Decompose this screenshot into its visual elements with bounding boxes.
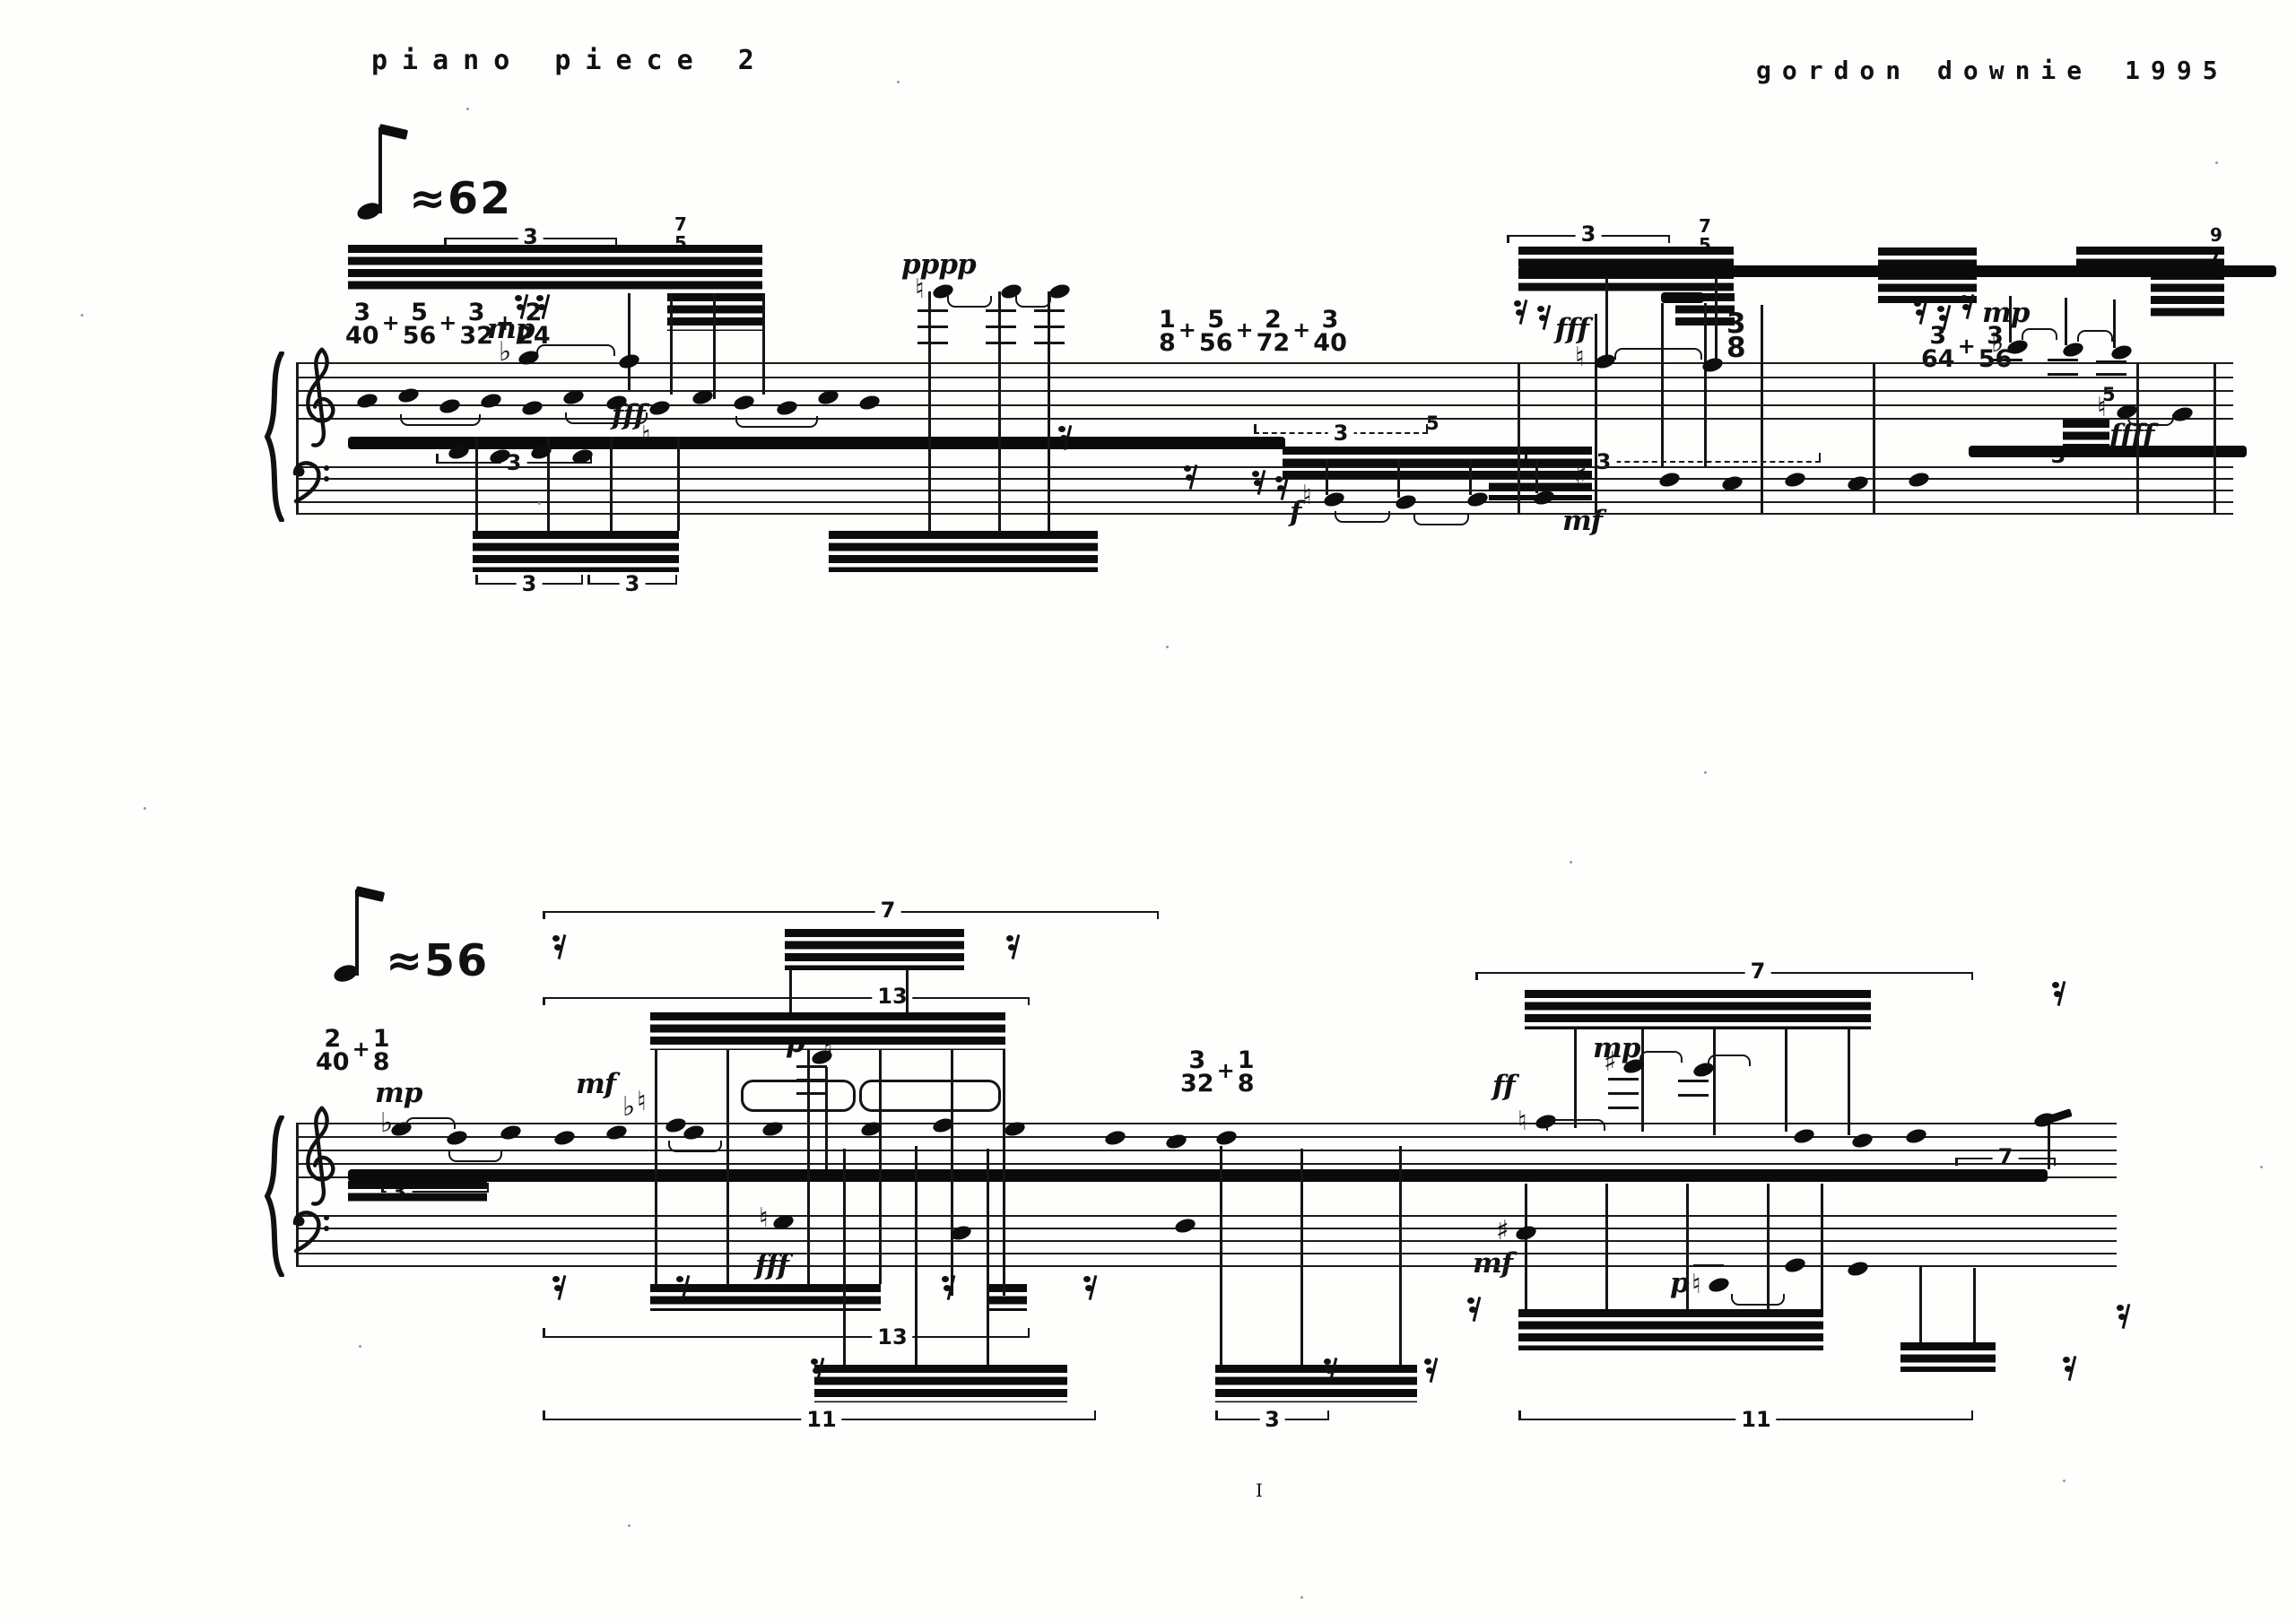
fraction-numerator: 3 bbox=[1188, 1049, 1205, 1072]
eighth-rest-icon bbox=[1514, 299, 1528, 326]
fraction-term: 240 bbox=[316, 1028, 350, 1073]
note-stem bbox=[1661, 303, 1664, 466]
tuplet-number: 3 bbox=[1328, 422, 1354, 444]
tuplet-number: 13 bbox=[872, 1326, 912, 1348]
fraction-numerator: 5 bbox=[1207, 308, 1224, 332]
fraction-denominator: 8 bbox=[1238, 1072, 1255, 1096]
fraction-term: 556 bbox=[403, 301, 437, 347]
eighth-rest-icon bbox=[1424, 1358, 1439, 1384]
staff-line bbox=[296, 1163, 2117, 1165]
tie-slur bbox=[2127, 414, 2174, 426]
note-stem bbox=[475, 437, 478, 531]
ledger-line bbox=[1608, 1107, 1639, 1109]
scan-speck bbox=[1300, 1596, 1303, 1599]
tuplet-bracket-hook bbox=[1971, 972, 1974, 980]
fraction-denominator: 8 bbox=[1159, 332, 1176, 355]
tuplet-bracket-hook bbox=[1028, 1328, 1031, 1336]
natural-accidental: ♮ bbox=[637, 1089, 647, 1115]
tuplet-bracket-line bbox=[543, 997, 1030, 999]
tie-slur bbox=[735, 416, 818, 428]
plus-sign: + bbox=[439, 312, 457, 334]
ledger-line bbox=[918, 325, 948, 328]
ledger-line bbox=[1992, 359, 2022, 361]
note-stem bbox=[1397, 459, 1400, 498]
plus-sign: + bbox=[1958, 335, 1976, 357]
tie-slur bbox=[1708, 1055, 1751, 1066]
staff-line bbox=[296, 466, 2233, 468]
note-stem bbox=[1973, 1268, 1976, 1342]
tuplet-bracket-3-15: 3 bbox=[1215, 1419, 1329, 1421]
scan-speck bbox=[1704, 771, 1707, 774]
note-stem bbox=[1715, 276, 1718, 360]
notehead bbox=[1792, 1127, 1815, 1145]
barline bbox=[1873, 362, 1875, 513]
eighth-rest-icon bbox=[942, 1275, 956, 1302]
tuplet-bracket-hook bbox=[543, 911, 545, 919]
heavy-beam bbox=[1518, 265, 2276, 277]
system-brace-icon bbox=[264, 352, 285, 522]
dynamic-marking-ff-11: ff bbox=[1492, 1072, 1515, 1100]
tuplet-number: 7 bbox=[875, 899, 901, 921]
fraction-term: 340 bbox=[1313, 308, 1347, 354]
staff-line bbox=[296, 1215, 2117, 1217]
scan-speck bbox=[81, 314, 83, 317]
plus-sign: + bbox=[352, 1038, 370, 1060]
note-stem bbox=[906, 968, 909, 1012]
eighth-note-icon bbox=[357, 122, 404, 219]
fraction-numerator: 5 bbox=[411, 301, 428, 325]
staff-line bbox=[296, 404, 2233, 406]
dynamic-marking-mf-9: mf bbox=[576, 1071, 615, 1098]
treble-clef-icon bbox=[292, 1099, 343, 1212]
note-stem bbox=[1704, 303, 1707, 466]
notehead bbox=[1907, 471, 1930, 489]
tuplet-number: 3 bbox=[620, 573, 646, 595]
note-stem bbox=[670, 293, 673, 395]
sharp-accidental: ♯ bbox=[1496, 1218, 1509, 1245]
fraction-numerator: 3 bbox=[353, 301, 370, 325]
note-stem bbox=[2048, 1119, 2050, 1169]
note-stem bbox=[1761, 305, 1763, 513]
tuplet-bracket-hook bbox=[1028, 997, 1031, 1005]
beam-block bbox=[829, 531, 1098, 572]
tie-slur bbox=[1335, 511, 1390, 523]
tuplet-bracket-3-3: 3 bbox=[1254, 432, 1428, 435]
staff-line bbox=[296, 1265, 2117, 1267]
note-stem bbox=[1713, 1029, 1716, 1135]
system-brace-icon bbox=[264, 1115, 285, 1277]
sharp-accidental: ♯ bbox=[1574, 463, 1587, 490]
natural-accidental: ♮ bbox=[759, 1205, 769, 1232]
eighth-rest-icon bbox=[2052, 981, 2066, 1008]
extended-tie bbox=[859, 1080, 1001, 1112]
dynamic-marking-fff-4: fff bbox=[1555, 316, 1588, 343]
fraction-term: 18 bbox=[373, 1028, 390, 1073]
time-signature-denominator: 8 bbox=[1726, 336, 1746, 360]
extended-tie bbox=[741, 1080, 856, 1112]
note-stem bbox=[677, 437, 680, 531]
tuplet-number: 3 bbox=[1259, 1409, 1285, 1430]
scan-speck bbox=[359, 1345, 361, 1348]
eighth-rest-icon bbox=[1184, 464, 1198, 491]
natural-accidental: ♮ bbox=[641, 423, 651, 450]
fraction-numerator: 3 bbox=[1322, 308, 1339, 332]
barline bbox=[2136, 362, 2139, 513]
tuplet-bracket-hook bbox=[581, 575, 584, 583]
notehead bbox=[1048, 282, 1071, 300]
tuplet-number: 11 bbox=[801, 1409, 841, 1430]
plus-sign: + bbox=[1292, 319, 1310, 341]
tuplet-bracket-hook bbox=[543, 997, 545, 1005]
tuplet-bracket-line bbox=[543, 911, 1159, 913]
beam-block bbox=[785, 929, 964, 970]
notehead bbox=[479, 392, 502, 410]
note-stem bbox=[987, 1149, 989, 1365]
note-stem bbox=[713, 293, 716, 399]
tuplet-number: 3 bbox=[517, 573, 543, 595]
eighth-rest-icon bbox=[1324, 1358, 1338, 1384]
notehead bbox=[520, 399, 544, 417]
fraction-denominator: 8 bbox=[373, 1051, 390, 1074]
natural-accidental: ♮ bbox=[1692, 1271, 1701, 1298]
scan-speck bbox=[1570, 861, 1572, 864]
fraction-term: 18 bbox=[1238, 1049, 1255, 1095]
notehead bbox=[732, 394, 755, 412]
tuplet-bracket-hook bbox=[1157, 911, 1160, 919]
notehead bbox=[1214, 1129, 1238, 1147]
notehead bbox=[1783, 471, 1806, 489]
eighth-rest-icon bbox=[1275, 475, 1290, 502]
tuplet-bracket-3-1: 3 bbox=[1507, 235, 1670, 238]
fraction-denominator: 56 bbox=[403, 325, 437, 348]
staff-line bbox=[296, 1228, 2117, 1229]
notehead bbox=[552, 1129, 576, 1147]
tuplet-bracket-hook bbox=[436, 454, 439, 462]
footer-mark: I bbox=[1256, 1480, 1263, 1501]
tuplet-bracket-7-8: 7 bbox=[543, 911, 1159, 914]
scan-speck bbox=[2215, 161, 2218, 164]
eighth-note-icon bbox=[334, 884, 380, 981]
note-stem bbox=[1686, 1184, 1689, 1309]
tie-slur bbox=[1731, 1294, 1785, 1306]
notehead bbox=[1164, 1133, 1187, 1150]
ledger-line bbox=[2048, 359, 2078, 361]
tie-slur bbox=[400, 414, 481, 426]
scan-speck bbox=[538, 502, 541, 505]
tie-slur bbox=[947, 296, 992, 308]
fraction-denominator: 40 bbox=[1313, 332, 1347, 355]
eighth-rest-icon bbox=[1006, 934, 1021, 961]
plus-sign: + bbox=[1235, 319, 1253, 341]
tie-slur bbox=[2077, 330, 2113, 342]
plus-sign: + bbox=[1178, 319, 1196, 341]
scan-speck bbox=[628, 1524, 631, 1527]
notehead bbox=[1846, 1260, 1869, 1278]
eighth-rest-icon bbox=[1937, 305, 1952, 332]
ratio-top: 7 bbox=[1699, 217, 1711, 236]
eighth-rest-icon bbox=[676, 1275, 691, 1302]
note-stem bbox=[655, 1050, 657, 1284]
fraction-denominator: 32 bbox=[1180, 1072, 1214, 1096]
treble-clef-icon bbox=[292, 341, 343, 454]
eighth-rest-icon bbox=[811, 1358, 825, 1384]
notehead bbox=[617, 352, 640, 370]
notehead bbox=[499, 1124, 522, 1141]
beam-block bbox=[1283, 447, 1507, 482]
note-stem bbox=[762, 293, 765, 395]
tempo-value: ≈62 bbox=[409, 179, 512, 219]
ledger-line bbox=[918, 342, 948, 344]
note-stem bbox=[1399, 1146, 1402, 1365]
eighth-rest-icon bbox=[1467, 1297, 1482, 1324]
note-stem bbox=[1003, 1050, 1005, 1296]
notehead bbox=[682, 1124, 705, 1141]
notehead bbox=[1173, 1217, 1196, 1235]
tuplet-bracket-hook bbox=[475, 575, 478, 583]
heavy-beam bbox=[348, 1169, 2048, 1182]
heavy-beam bbox=[1661, 292, 1704, 303]
fraction-numerator: 1 bbox=[1238, 1049, 1255, 1072]
flat-accidental: ♭ bbox=[380, 1110, 393, 1137]
eighth-rest-icon bbox=[1914, 299, 1928, 326]
ledger-line bbox=[1034, 309, 1065, 312]
tempo-value: ≈56 bbox=[386, 942, 489, 981]
staff-line bbox=[296, 1240, 2117, 1242]
eighth-rest-icon bbox=[552, 1275, 567, 1302]
tuplet-bracket-11-14: 11 bbox=[543, 1419, 1096, 1421]
note-stem bbox=[843, 1149, 846, 1365]
tuplet-bracket-hook bbox=[543, 1410, 545, 1419]
notehead bbox=[1657, 471, 1681, 489]
tie-slur bbox=[1546, 1119, 1605, 1131]
metric-fraction-s2-mid: 332+18 bbox=[1180, 1049, 1254, 1095]
natural-accidental: ♮ bbox=[823, 1037, 833, 1063]
tuplet-bracket-hook bbox=[1507, 235, 1509, 243]
natural-accidental: ♮ bbox=[915, 276, 925, 303]
note-stem bbox=[628, 293, 631, 390]
ledger-line bbox=[986, 342, 1016, 344]
note-stem bbox=[1595, 314, 1597, 513]
notehead bbox=[1904, 1127, 1927, 1145]
tuplet-bracket-hook bbox=[1819, 453, 1822, 461]
notehead bbox=[857, 394, 881, 412]
tie-slur bbox=[1639, 1051, 1683, 1063]
scan-speck bbox=[1166, 646, 1169, 648]
beam-block bbox=[1525, 990, 1871, 1029]
notehead bbox=[445, 1129, 468, 1147]
fraction-denominator: 40 bbox=[316, 1051, 350, 1074]
tuplet-bracket-hook bbox=[1518, 1410, 1521, 1419]
ledger-line bbox=[1678, 1080, 1709, 1082]
barline bbox=[1518, 362, 1520, 513]
flat-accidental: ♭ bbox=[1991, 330, 2004, 357]
fraction-numerator: 2 bbox=[1265, 308, 1282, 332]
ledger-line bbox=[986, 309, 1016, 312]
tuplet-bracket-hook bbox=[543, 1328, 545, 1336]
staff-line bbox=[296, 513, 2233, 515]
note-stem bbox=[789, 968, 792, 1012]
fraction-denominator: 64 bbox=[1921, 348, 1955, 371]
scan-speck bbox=[897, 81, 900, 83]
staff-line bbox=[296, 362, 2233, 364]
note-stem bbox=[1785, 1029, 1787, 1132]
heavy-beam bbox=[348, 437, 1285, 449]
beam-block bbox=[473, 531, 679, 572]
fraction-term: 340 bbox=[345, 301, 379, 347]
flat-accidental: ♭ bbox=[622, 1094, 635, 1121]
tie-slur bbox=[668, 1141, 722, 1152]
fraction-term: 556 bbox=[1199, 308, 1233, 354]
note-stem bbox=[726, 1050, 729, 1284]
bass-clef-icon bbox=[291, 459, 332, 506]
note-stem bbox=[1525, 1184, 1527, 1309]
note-stem bbox=[1767, 1184, 1770, 1309]
beam-block bbox=[1518, 1309, 1823, 1350]
scan-speck bbox=[466, 108, 469, 110]
tuplet-bracket-hook bbox=[1668, 235, 1671, 243]
tuplet-bracket-hook bbox=[1971, 1410, 1974, 1419]
ledger-line bbox=[2096, 360, 2126, 363]
tuplet-bracket-hook bbox=[587, 575, 590, 583]
plus-sign: + bbox=[382, 312, 400, 334]
metric-fraction-s2-left: 240+18 bbox=[316, 1028, 389, 1073]
natural-accidental: ♮ bbox=[1575, 344, 1585, 371]
eighth-rest-icon bbox=[552, 934, 567, 961]
staff-line bbox=[296, 377, 2233, 378]
ledger-line bbox=[2048, 373, 2078, 376]
note-flag-icon bbox=[2048, 1108, 2073, 1124]
dynamic-marking-mp-6: mp bbox=[1982, 299, 2029, 327]
tuplet-bracket-3-7: 3 bbox=[587, 583, 677, 586]
tie-slur bbox=[448, 1150, 502, 1162]
notehead bbox=[604, 1124, 628, 1141]
beam-block bbox=[1900, 1342, 1996, 1372]
tuplet-bracket-hook bbox=[1254, 424, 1257, 432]
ledger-line bbox=[1608, 1092, 1639, 1095]
tie-slur bbox=[405, 1117, 456, 1129]
scan-speck bbox=[2063, 1480, 2066, 1482]
tie-slur bbox=[1015, 296, 1051, 308]
tuplet-bracket-hook bbox=[1327, 1410, 1330, 1419]
tuplet-bracket-7-10: 7 bbox=[1475, 972, 1973, 975]
ledger-line bbox=[986, 325, 1016, 328]
eighth-rest-icon bbox=[2063, 1356, 2077, 1383]
notehead bbox=[1850, 1132, 1874, 1150]
note-stem bbox=[1326, 459, 1328, 495]
flat-accidental: ♭ bbox=[499, 339, 511, 366]
eighth-rest-icon bbox=[1961, 294, 1975, 321]
notehead bbox=[1783, 1256, 1806, 1274]
dynamic-marking-mp-8: mp bbox=[375, 1080, 422, 1107]
notehead bbox=[2170, 405, 2194, 423]
tuplet-bracket-hook bbox=[1215, 1410, 1218, 1419]
fraction-numerator: 3 bbox=[468, 301, 485, 325]
fraction-numerator: 1 bbox=[373, 1028, 390, 1051]
note-stem bbox=[2009, 296, 2012, 343]
tuplet-bracket-3-0: 3 bbox=[444, 238, 617, 240]
notehead bbox=[1103, 1129, 1126, 1147]
fraction-denominator: 72 bbox=[1257, 332, 1291, 355]
ratio-top: 9 bbox=[2210, 226, 2222, 245]
beam-block bbox=[348, 245, 762, 293]
tempo-marking-1: ≈62 bbox=[357, 122, 512, 219]
beam-block bbox=[348, 1181, 487, 1204]
sharp-accidental: ♯ bbox=[1604, 1049, 1617, 1076]
note-stem bbox=[610, 437, 613, 531]
note-stem bbox=[915, 1146, 918, 1365]
tuplet-bracket-7-12: 7 bbox=[1955, 1158, 2056, 1160]
ratio-top: 7 bbox=[674, 215, 687, 234]
dynamic-marking-pppp-2: pppp bbox=[901, 251, 976, 279]
note-stem bbox=[1469, 459, 1472, 495]
tuplet-bracket-11-16: 11 bbox=[1518, 1419, 1973, 1421]
ledger-line bbox=[796, 1092, 827, 1095]
barline bbox=[2213, 362, 2216, 513]
fraction-denominator: 56 bbox=[1199, 332, 1233, 355]
eighth-rest-icon bbox=[1252, 470, 1266, 497]
score-page: piano piece 2 gordon downie 1995 ≈62≈563… bbox=[0, 0, 2296, 1623]
note-stem bbox=[1641, 1029, 1644, 1132]
staff-line bbox=[296, 1123, 2117, 1124]
tuplet-bracket-hook bbox=[1094, 1410, 1097, 1419]
notehead bbox=[1707, 1276, 1730, 1294]
fraction-denominator: 40 bbox=[345, 325, 379, 348]
ledger-line bbox=[796, 1065, 827, 1068]
bass-clef-icon bbox=[291, 1209, 332, 1255]
ledger-line bbox=[1608, 1078, 1639, 1081]
fraction-term: 18 bbox=[1159, 308, 1176, 354]
tuplet-bracket-hook bbox=[675, 575, 678, 583]
score-canvas: ≈62≈5638340+556+332+22418+556+272+340364… bbox=[0, 0, 2296, 1623]
notehead bbox=[396, 386, 420, 404]
beam-block bbox=[1215, 1365, 1417, 1402]
note-stem bbox=[1605, 1184, 1608, 1309]
tempo-marking-2: ≈56 bbox=[334, 884, 489, 981]
note-stem bbox=[2113, 299, 2116, 348]
staff-line bbox=[296, 1253, 2117, 1254]
heavy-beam bbox=[1969, 446, 2247, 457]
notehead bbox=[355, 392, 378, 410]
beam-block bbox=[987, 1284, 1027, 1311]
tuplet-bracket-hook bbox=[1475, 972, 1478, 980]
tuplet-bracket-3-2: 3 bbox=[436, 462, 592, 464]
natural-accidental: ♮ bbox=[1302, 482, 1312, 509]
tuplet-bracket-3-6: 3 bbox=[475, 583, 583, 586]
eighth-rest-icon bbox=[2117, 1304, 2131, 1331]
eighth-rest-icon bbox=[536, 294, 551, 321]
natural-accidental: ♮ bbox=[1518, 1108, 1527, 1135]
tie-slur bbox=[2022, 328, 2057, 340]
note-stem bbox=[1848, 1029, 1850, 1135]
tie-slur bbox=[1614, 348, 1702, 360]
ledger-line bbox=[2096, 373, 2126, 376]
fraction-term: 332 bbox=[1180, 1049, 1214, 1095]
note-stem bbox=[1605, 276, 1608, 357]
ledger-line bbox=[1034, 325, 1065, 328]
ledger-line bbox=[1034, 342, 1065, 344]
notehead bbox=[775, 399, 798, 417]
note-stem bbox=[1919, 1265, 1922, 1342]
ledger-line bbox=[1693, 1264, 1724, 1267]
staff-line bbox=[296, 501, 2233, 503]
metric-fraction-s1-mid: 18+556+272+340 bbox=[1159, 308, 1347, 354]
note-stem bbox=[1821, 1184, 1823, 1309]
note-stem bbox=[1300, 1149, 1303, 1365]
beam-block bbox=[2151, 272, 2224, 317]
scan-speck bbox=[2260, 1166, 2263, 1168]
eighth-rest-icon bbox=[1083, 1275, 1098, 1302]
fraction-term: 272 bbox=[1257, 308, 1291, 354]
